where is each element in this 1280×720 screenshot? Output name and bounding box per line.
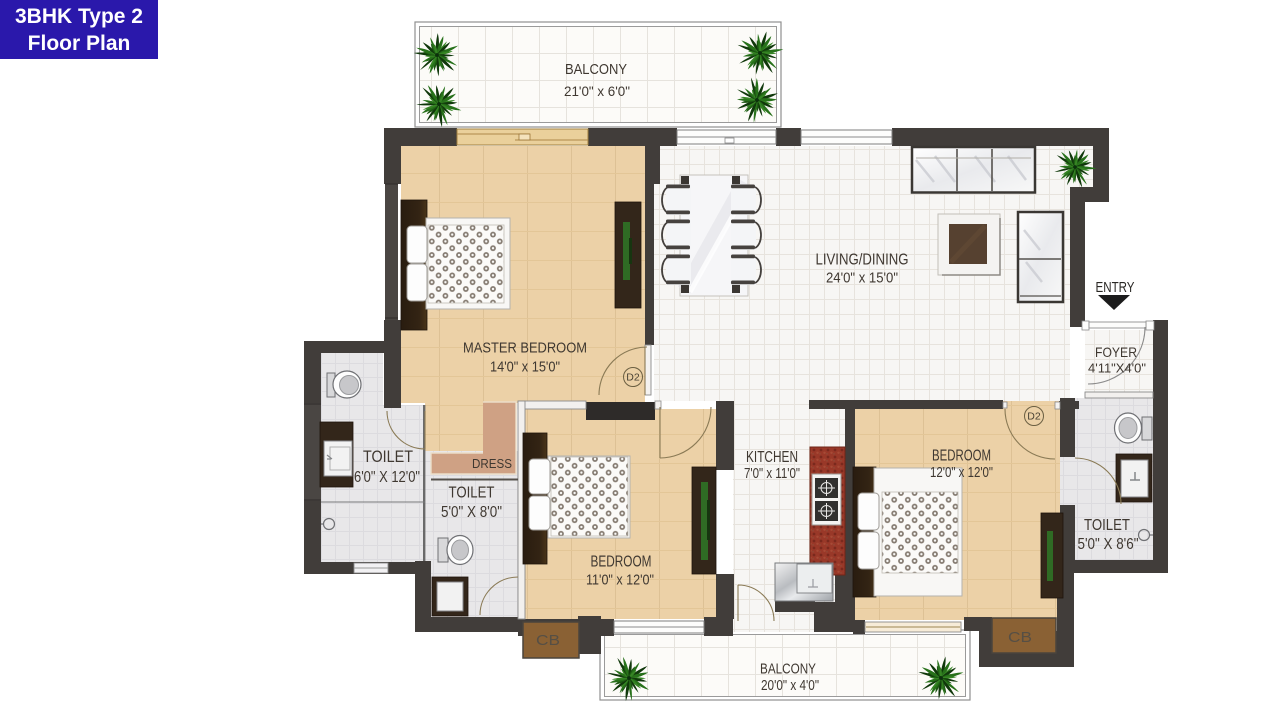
- svg-text:DRESS: DRESS: [472, 456, 512, 471]
- svg-text:D2: D2: [1027, 411, 1041, 423]
- svg-text:ENTRY: ENTRY: [1096, 279, 1135, 296]
- svg-text:LIVING/DINING: LIVING/DINING: [816, 252, 909, 269]
- svg-text:CB: CB: [536, 632, 560, 649]
- svg-text:20'0" x 4'0": 20'0" x 4'0": [761, 678, 819, 694]
- svg-text:5'0" X 8'0": 5'0" X 8'0": [441, 504, 502, 521]
- svg-text:TOILET: TOILET: [1084, 517, 1130, 534]
- svg-text:4'11"X4'0": 4'11"X4'0": [1088, 361, 1146, 376]
- svg-text:7'0" x 11'0": 7'0" x 11'0": [744, 465, 800, 482]
- svg-text:BEDROOM: BEDROOM: [932, 448, 991, 465]
- svg-text:BALCONY: BALCONY: [760, 661, 816, 678]
- svg-text:12'0" x 12'0": 12'0" x 12'0": [930, 464, 993, 481]
- svg-text:BEDROOM: BEDROOM: [591, 554, 652, 571]
- svg-text:BALCONY: BALCONY: [565, 61, 627, 78]
- svg-text:14'0" x 15'0": 14'0" x 15'0": [490, 359, 560, 376]
- svg-text:6'0" X 12'0": 6'0" X 12'0": [354, 469, 420, 486]
- svg-text:TOILET: TOILET: [363, 447, 413, 466]
- svg-text:FOYER: FOYER: [1095, 344, 1137, 360]
- svg-text:5'0" X 8'6": 5'0" X 8'6": [1078, 536, 1139, 553]
- svg-text:MASTER BEDROOM: MASTER BEDROOM: [463, 341, 587, 357]
- svg-text:CB: CB: [1008, 629, 1032, 646]
- svg-text:KITCHEN: KITCHEN: [746, 449, 798, 466]
- svg-text:21'0" x 6'0": 21'0" x 6'0": [564, 83, 630, 99]
- svg-text:TOILET: TOILET: [449, 485, 495, 502]
- svg-text:11'0" x 12'0": 11'0" x 12'0": [586, 572, 654, 589]
- svg-text:24'0" x 15'0": 24'0" x 15'0": [826, 271, 898, 287]
- svg-text:D2: D2: [626, 372, 640, 384]
